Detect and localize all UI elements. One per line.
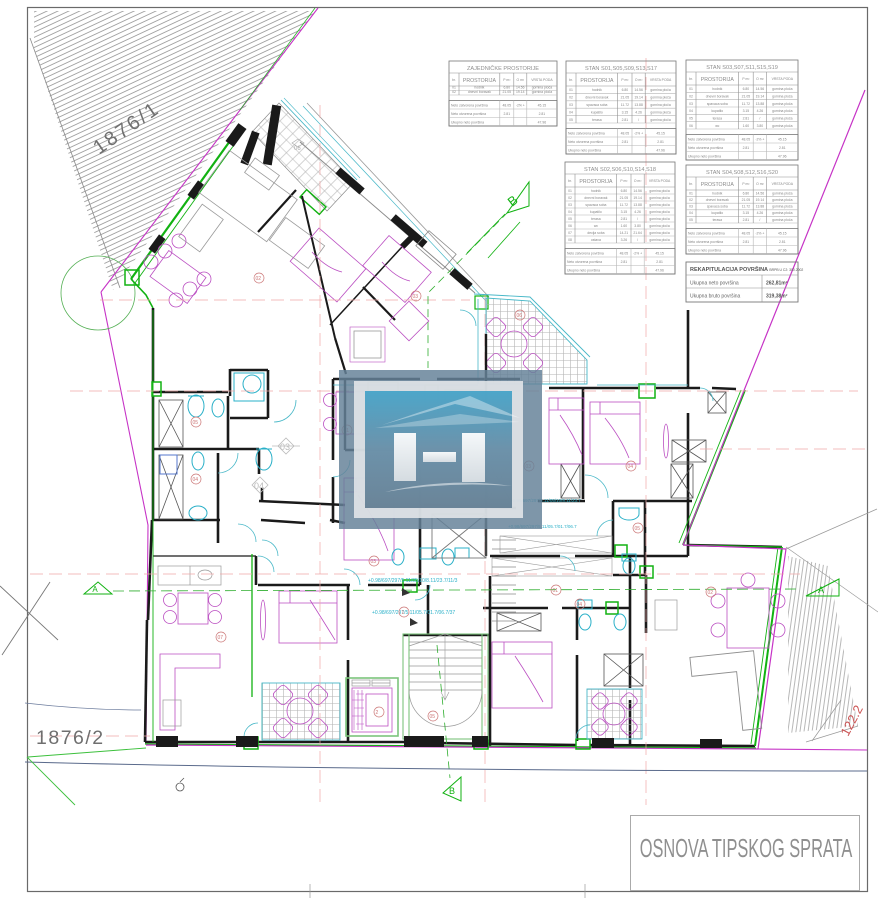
- svg-text:47.96: 47.96: [778, 249, 787, 253]
- svg-text:05: 05: [430, 714, 436, 720]
- svg-text:PROSTORIJA: PROSTORIJA: [701, 182, 735, 188]
- svg-text:-2% +: -2% +: [634, 132, 643, 136]
- svg-text:13.88: 13.88: [633, 203, 642, 207]
- svg-text:hodnik: hodnik: [591, 189, 601, 193]
- svg-text:br.: br.: [452, 78, 456, 82]
- svg-text:gornina ploča: gornina ploča: [650, 96, 670, 100]
- svg-text:VRSTA PODA: VRSTA PODA: [649, 179, 671, 183]
- svg-text:gornina ploča: gornina ploča: [532, 90, 552, 94]
- svg-text:gornina ploča: gornina ploča: [772, 218, 792, 222]
- svg-text:PROSTORIJA: PROSTORIJA: [579, 179, 613, 185]
- svg-text:06: 06: [568, 224, 572, 228]
- svg-text:gornina ploča: gornina ploča: [772, 211, 792, 215]
- svg-text:11.72: 11.72: [742, 205, 750, 209]
- svg-text:Ukupno neto površina: Ukupno neto površina: [688, 155, 721, 159]
- svg-text:262,81m²: 262,81m²: [766, 281, 788, 287]
- svg-text:Neto otvorena površina: Neto otvorena površina: [568, 140, 603, 144]
- svg-text:VRSTA PODA: VRSTA PODA: [772, 182, 794, 186]
- svg-text:Neto zatvorena površina: Neto zatvorena površina: [688, 138, 725, 142]
- svg-text:03: 03: [280, 442, 290, 452]
- svg-text:13.88: 13.88: [756, 102, 765, 106]
- svg-text:P m²: P m²: [503, 78, 511, 82]
- svg-text:1876/2: 1876/2: [36, 727, 105, 749]
- svg-text:dnevni boravak: dnevni boravak: [585, 96, 608, 100]
- svg-text:07: 07: [568, 231, 572, 235]
- svg-text:01: 01: [568, 189, 572, 193]
- svg-text:kupatilo: kupatilo: [591, 110, 603, 114]
- svg-text:gornina ploča: gornina ploča: [649, 189, 669, 193]
- svg-text:hodnik: hodnik: [712, 87, 722, 91]
- svg-text:-2% +: -2% +: [755, 232, 764, 236]
- svg-text:Neto otvorena površina: Neto otvorena površina: [567, 260, 602, 264]
- svg-text:07: 07: [218, 635, 224, 641]
- svg-text:spavaca soba: spavaca soba: [585, 203, 606, 207]
- svg-text:-2% +: -2% +: [755, 138, 764, 142]
- svg-text:48.05: 48.05: [742, 232, 751, 236]
- svg-text:6.80: 6.80: [743, 191, 750, 195]
- svg-text:gornina ploča: gornina ploča: [772, 109, 792, 113]
- svg-text:4.26: 4.26: [757, 211, 764, 215]
- svg-text:19.14: 19.14: [516, 90, 525, 94]
- svg-text:21.05: 21.05: [742, 95, 751, 99]
- svg-text:06: 06: [517, 313, 523, 319]
- svg-text:kupatilo: kupatilo: [590, 210, 602, 214]
- svg-text:gornina ploča: gornina ploča: [650, 88, 670, 92]
- svg-text:Ukupno neto površina: Ukupno neto površina: [568, 149, 601, 153]
- svg-text:dnevni boravak: dnevni boravak: [706, 198, 729, 202]
- svg-text:1.60: 1.60: [743, 124, 750, 128]
- svg-text:+0.98/697/297/5.11/05.7/01.7/0: +0.98/697/297/5.11/05.7/01.7/06.7/37: [372, 610, 455, 616]
- svg-text:11.72: 11.72: [621, 103, 629, 107]
- svg-text:P m²: P m²: [742, 182, 750, 186]
- svg-text:13.88: 13.88: [634, 103, 643, 107]
- svg-text:14.56: 14.56: [756, 191, 765, 195]
- svg-text:/: /: [638, 118, 639, 122]
- svg-text:Ukupno neto površina: Ukupno neto površina: [688, 249, 721, 253]
- svg-text:O m²: O m²: [756, 182, 764, 186]
- svg-text:hodnik: hodnik: [712, 191, 722, 195]
- svg-text:03: 03: [568, 203, 572, 207]
- svg-text:2.81: 2.81: [743, 218, 750, 222]
- svg-text:br.: br.: [569, 78, 573, 82]
- svg-text:3.26: 3.26: [621, 238, 628, 242]
- svg-text:14.56: 14.56: [516, 85, 525, 89]
- svg-text:kupatilo: kupatilo: [711, 211, 723, 215]
- svg-text:02: 02: [568, 196, 572, 200]
- svg-text:04: 04: [577, 602, 583, 608]
- svg-text:2.81: 2.81: [743, 146, 750, 150]
- svg-text:kupatilo: kupatilo: [711, 109, 723, 113]
- svg-text:O m²: O m²: [635, 78, 643, 82]
- svg-text:B: B: [449, 786, 455, 796]
- svg-text:45.15: 45.15: [538, 104, 547, 108]
- svg-text:47.96: 47.96: [778, 155, 787, 159]
- svg-text:gornina ploča: gornina ploča: [649, 196, 669, 200]
- svg-text:ostava: ostava: [591, 238, 601, 242]
- svg-text:21.64: 21.64: [633, 231, 642, 235]
- svg-text:Neto otvorena površina: Neto otvorena površina: [688, 146, 723, 150]
- svg-text:wc: wc: [715, 124, 719, 128]
- svg-text:Neto zatvorena površina: Neto zatvorena površina: [451, 104, 488, 108]
- svg-text:05: 05: [193, 420, 199, 426]
- svg-text:05: 05: [689, 218, 693, 222]
- svg-text:gornina ploča: gornina ploča: [649, 231, 669, 235]
- svg-text:dnevni boravak: dnevni boravak: [584, 196, 607, 200]
- svg-text:PROSTORIJA: PROSTORIJA: [701, 77, 735, 83]
- svg-text:gornina ploča: gornina ploča: [650, 118, 670, 122]
- svg-text:/: /: [759, 218, 760, 222]
- svg-text:gornina ploča: gornina ploča: [649, 203, 669, 207]
- svg-text:br.: br.: [568, 179, 572, 183]
- svg-text:decija soba: decija soba: [587, 231, 604, 235]
- svg-text:A: A: [92, 585, 98, 594]
- svg-text:terasa: terasa: [713, 218, 723, 222]
- svg-text:48.05: 48.05: [620, 252, 629, 256]
- svg-text:-2% +: -2% +: [516, 104, 525, 108]
- svg-text:11.72: 11.72: [742, 102, 750, 106]
- svg-text:05: 05: [568, 217, 572, 221]
- svg-text:gornina ploča: gornina ploča: [772, 191, 792, 195]
- svg-text:Ukupna neto površina: Ukupna neto površina: [690, 281, 739, 287]
- svg-text:terasa: terasa: [591, 217, 601, 221]
- svg-text:terasa: terasa: [713, 117, 723, 121]
- svg-text:gornina ploča: gornina ploča: [649, 217, 669, 221]
- svg-text:04: 04: [628, 464, 634, 470]
- svg-text:br.: br.: [689, 77, 693, 81]
- svg-text:+0.98/697/297/5.11/05/10/8.11/: +0.98/697/297/5.11/05/10/8.11/23.7/11/3: [368, 578, 458, 584]
- svg-text:gornina ploča: gornina ploča: [649, 210, 669, 214]
- svg-text:spavaca soba: spavaca soba: [707, 205, 728, 209]
- svg-text:03: 03: [689, 205, 693, 209]
- svg-text:gornina ploča: gornina ploča: [772, 117, 792, 121]
- svg-text:2.81: 2.81: [622, 118, 629, 122]
- svg-text:2.81: 2.81: [503, 112, 510, 116]
- svg-text:13.88: 13.88: [756, 205, 765, 209]
- svg-text:14.56: 14.56: [633, 189, 642, 193]
- svg-text:6.80: 6.80: [503, 85, 510, 89]
- svg-text:O m²: O m²: [517, 78, 525, 82]
- svg-text:gornina ploča: gornina ploča: [772, 95, 792, 99]
- svg-text:dnevni boravak: dnevni boravak: [706, 95, 729, 99]
- svg-text:Ukupno neto površina: Ukupno neto površina: [567, 269, 600, 273]
- svg-text:6.80: 6.80: [621, 189, 628, 193]
- svg-text:gornina ploča: gornina ploča: [772, 205, 792, 209]
- svg-text:2.81: 2.81: [656, 260, 663, 264]
- svg-text:terasa: terasa: [592, 118, 602, 122]
- svg-text:48.05: 48.05: [621, 132, 630, 136]
- svg-text:OSNOVA TIPSKOG SPRATA: OSNOVA TIPSKOG SPRATA: [640, 833, 853, 863]
- svg-text:45.15: 45.15: [778, 232, 787, 236]
- svg-text:A: A: [818, 585, 824, 595]
- svg-text:03: 03: [569, 103, 573, 107]
- svg-text:14.56: 14.56: [634, 88, 643, 92]
- svg-text:14.56: 14.56: [756, 87, 765, 91]
- svg-text:gornina ploča: gornina ploča: [532, 85, 552, 89]
- svg-text:21.05: 21.05: [503, 90, 512, 94]
- svg-text:P m²: P m²: [621, 78, 629, 82]
- svg-text:47.96: 47.96: [656, 149, 665, 153]
- svg-text:02: 02: [689, 95, 693, 99]
- svg-text:2.81: 2.81: [743, 117, 750, 121]
- svg-text:04: 04: [193, 477, 199, 483]
- svg-text:spavaca soba: spavaca soba: [586, 103, 607, 107]
- svg-text:05: 05: [635, 526, 641, 532]
- svg-text:21.05: 21.05: [620, 196, 629, 200]
- svg-text:2.81: 2.81: [621, 217, 628, 221]
- svg-text:O m²: O m²: [634, 179, 642, 183]
- svg-text:STAN S03,S07,S11,S15,S19: STAN S03,S07,S11,S15,S19: [706, 65, 778, 71]
- svg-text:6.80: 6.80: [622, 88, 629, 92]
- svg-text:br.: br.: [689, 182, 693, 186]
- svg-text:3.15: 3.15: [743, 109, 750, 113]
- svg-text:05: 05: [569, 118, 573, 122]
- svg-text:01: 01: [689, 87, 693, 91]
- svg-text:01: 01: [689, 191, 693, 195]
- svg-text:2.81: 2.81: [743, 240, 750, 244]
- svg-text:47.96: 47.96: [538, 121, 547, 125]
- svg-text:3.80: 3.80: [634, 224, 641, 228]
- svg-text:Ukupno neto površina: Ukupno neto površina: [451, 121, 484, 125]
- svg-text:hodnik: hodnik: [474, 85, 484, 89]
- svg-text:spavaca soba: spavaca soba: [707, 102, 728, 106]
- svg-text:Neto zatvorena površina: Neto zatvorena površina: [568, 132, 605, 136]
- svg-text:4.26: 4.26: [634, 210, 641, 214]
- svg-text:VRSTA PODA: VRSTA PODA: [772, 77, 794, 81]
- svg-text:1: 1: [402, 610, 405, 616]
- svg-text:01: 01: [553, 588, 559, 594]
- svg-text:PROSTORIJA: PROSTORIJA: [463, 78, 497, 84]
- svg-text:03: 03: [413, 294, 419, 300]
- svg-text:VRSTA PODA: VRSTA PODA: [531, 78, 553, 82]
- svg-text:O m²: O m²: [756, 77, 764, 81]
- svg-text:2.81: 2.81: [539, 112, 546, 116]
- svg-text:45.15: 45.15: [656, 132, 665, 136]
- svg-text:gornina ploča: gornina ploča: [772, 102, 792, 106]
- svg-text:45.15: 45.15: [655, 252, 664, 256]
- svg-text:48.05: 48.05: [742, 138, 751, 142]
- svg-text:Neto otvorena površina: Neto otvorena površina: [688, 240, 723, 244]
- svg-text:19.14: 19.14: [756, 198, 765, 202]
- svg-text:04: 04: [254, 481, 264, 491]
- svg-text:47.96: 47.96: [655, 269, 664, 273]
- svg-text:3.80: 3.80: [757, 124, 764, 128]
- svg-text:3.15: 3.15: [743, 211, 750, 215]
- svg-text:/: /: [759, 117, 760, 121]
- svg-text:06: 06: [294, 146, 301, 152]
- svg-text:14.21: 14.21: [620, 231, 629, 235]
- svg-text:01: 01: [452, 85, 456, 89]
- svg-text:Neto zatvorena površina: Neto zatvorena površina: [567, 252, 604, 256]
- svg-text:/: /: [637, 238, 638, 242]
- svg-text:gornina ploča: gornina ploča: [772, 124, 792, 128]
- svg-text:04: 04: [689, 109, 693, 113]
- svg-text:gornina ploča: gornina ploča: [772, 87, 792, 91]
- svg-text:2.81: 2.81: [779, 146, 786, 150]
- svg-text:2: 2: [376, 710, 379, 716]
- svg-text:/: /: [637, 217, 638, 221]
- svg-text:3.15: 3.15: [621, 210, 628, 214]
- svg-text:04: 04: [569, 110, 573, 114]
- svg-text:02: 02: [256, 276, 262, 282]
- svg-text:-2% +: -2% +: [633, 252, 642, 256]
- svg-text:319,38m²: 319,38m²: [766, 294, 788, 300]
- svg-text:ZAJEDNIČKE PROSTORIJE: ZAJEDNIČKE PROSTORIJE: [467, 65, 539, 72]
- svg-text:11.72: 11.72: [620, 203, 628, 207]
- svg-text:2.81: 2.81: [622, 140, 629, 144]
- svg-text:P m²: P m²: [620, 179, 628, 183]
- svg-text:06: 06: [689, 124, 693, 128]
- svg-text:dnevni boravak: dnevni boravak: [468, 90, 491, 94]
- svg-text:19.14: 19.14: [756, 95, 765, 99]
- svg-text:3.15: 3.15: [622, 110, 629, 114]
- svg-text:48.05: 48.05: [503, 104, 512, 108]
- svg-text:VRSTA PODA: VRSTA PODA: [650, 78, 672, 82]
- svg-text:wc: wc: [594, 224, 598, 228]
- svg-text:04: 04: [689, 211, 693, 215]
- svg-text:4.26: 4.26: [635, 110, 642, 114]
- svg-text:02: 02: [708, 590, 714, 596]
- svg-text:21.05: 21.05: [742, 198, 751, 202]
- svg-text:01: 01: [569, 88, 573, 92]
- svg-text:gornina ploča: gornina ploča: [649, 238, 669, 242]
- svg-text:gornina ploča: gornina ploča: [772, 198, 792, 202]
- svg-text:gornina ploča: gornina ploča: [650, 103, 670, 107]
- svg-text:19.14: 19.14: [633, 196, 642, 200]
- svg-text:05: 05: [689, 117, 693, 121]
- svg-text:STAN S01,S05,S09,S13,S17: STAN S01,S05,S09,S13,S17: [585, 66, 657, 72]
- svg-text:hodnik: hodnik: [592, 88, 602, 92]
- svg-text:03: 03: [371, 559, 377, 565]
- svg-text:6.80: 6.80: [743, 87, 750, 91]
- svg-text:19.14: 19.14: [634, 96, 643, 100]
- svg-text:21.05: 21.05: [621, 96, 630, 100]
- svg-text:2.81: 2.81: [779, 240, 786, 244]
- svg-text:PROSTORIJA: PROSTORIJA: [580, 78, 614, 84]
- svg-text:4.26: 4.26: [757, 109, 764, 113]
- svg-text:STAN S04,S08,S12,S16,S20: STAN S04,S08,S12,S16,S20: [706, 170, 778, 176]
- svg-text:2.81: 2.81: [621, 260, 628, 264]
- svg-text:02: 02: [569, 96, 573, 100]
- svg-text:08: 08: [568, 238, 572, 242]
- svg-text:P m²: P m²: [742, 77, 750, 81]
- svg-text:Neto zatvorena površina: Neto zatvorena površina: [688, 232, 725, 236]
- svg-text:04: 04: [568, 210, 572, 214]
- svg-text:gornina ploča: gornina ploča: [649, 224, 669, 228]
- svg-text:gornina ploča: gornina ploča: [650, 110, 670, 114]
- svg-text:45.15: 45.15: [778, 138, 787, 142]
- svg-text:Neto otvorena površina: Neto otvorena površina: [451, 112, 486, 116]
- svg-text:Ukupna bruto površina: Ukupna bruto površina: [690, 294, 741, 300]
- svg-text:1.60: 1.60: [621, 224, 628, 228]
- svg-text:STAN S02,S06,S10,S14,S18: STAN S02,S06,S10,S14,S18: [584, 167, 656, 173]
- svg-text:02: 02: [452, 90, 456, 94]
- svg-text:02: 02: [689, 198, 693, 202]
- svg-text:03: 03: [689, 102, 693, 106]
- svg-text:2.81: 2.81: [657, 140, 664, 144]
